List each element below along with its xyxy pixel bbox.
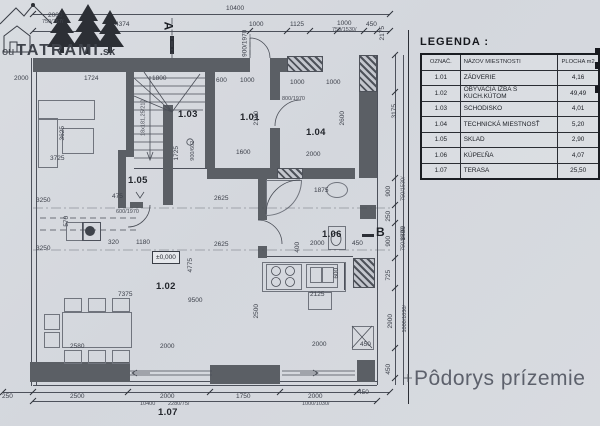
legend-cell: 4,16 bbox=[558, 70, 599, 86]
dim-label: 320 bbox=[108, 240, 119, 247]
dim-label: 1125 bbox=[290, 22, 304, 29]
legend-cell: 1.07 bbox=[421, 163, 460, 179]
legend-cell: TECHNICKÁ MIESTNOSŤ bbox=[460, 117, 558, 133]
dim-label: 1600 bbox=[236, 150, 250, 157]
legend-cell: KÚPEĽŇA bbox=[460, 148, 558, 164]
legend-cell: 1.04 bbox=[421, 117, 460, 133]
dim-label: 2175 bbox=[380, 26, 387, 40]
dim-label: 1000/1030/ bbox=[302, 402, 330, 408]
dim-label: 2000 bbox=[310, 241, 324, 248]
dim-label: 2125 bbox=[310, 292, 324, 299]
dim-label: 570 bbox=[64, 216, 71, 227]
dim-label: 2625 bbox=[214, 242, 228, 249]
dim-label: 2500 bbox=[70, 394, 84, 401]
sheet-edge-mark bbox=[595, 86, 600, 93]
legend-panel: LEGENDA : OZNAČ. NÁZOV MIESTNOSTI PLOCHA… bbox=[420, 36, 600, 180]
legend-row: 1.04 TECHNICKÁ MIESTNOSŤ 5,20 bbox=[421, 117, 599, 133]
dim-label: 3175 bbox=[392, 104, 399, 118]
legend-row: 1.06 KÚPEĽŇA 4,07 bbox=[421, 148, 599, 164]
level-marker: ±0,000 bbox=[152, 251, 180, 264]
logo-tld: .sk bbox=[100, 46, 115, 58]
dim-label: 2160 bbox=[254, 111, 261, 125]
dim-label: 450 bbox=[360, 342, 371, 349]
room-label-102: 1.02 bbox=[156, 282, 176, 292]
legend-title: LEGENDA : bbox=[420, 36, 600, 48]
dim-label: 600 bbox=[334, 268, 341, 279]
dim-label: 1725 bbox=[174, 146, 181, 160]
dim-label: 900/1970 bbox=[242, 30, 249, 57]
legend-cell: ZÁDVERIE bbox=[460, 70, 558, 86]
dim-label: 725 bbox=[386, 270, 393, 281]
dim-label: 450 bbox=[352, 241, 363, 248]
dim-label: 2000 bbox=[312, 342, 326, 349]
legend-header-plocha: PLOCHA m2 bbox=[558, 54, 599, 70]
legend-row: 1.07 TERASA 25,50 bbox=[421, 163, 599, 179]
dim-label: 1750 bbox=[236, 394, 250, 401]
room-label-106: 1.06 bbox=[322, 230, 342, 240]
dim-label: 3250 bbox=[36, 198, 50, 205]
legend-cell: 1.02 bbox=[421, 86, 460, 102]
dim-label: 1875 bbox=[314, 188, 328, 195]
dim-label: 2000 bbox=[308, 394, 322, 401]
dim-label: 800/1970 bbox=[282, 97, 305, 103]
sheet-edge-mark bbox=[595, 48, 600, 55]
logo-wordmark: ou TATRAMI .sk bbox=[2, 42, 115, 60]
floor-plan-sheet: ou TATRAMI .sk 1.01 1.02 1.03 1.04 1.05 … bbox=[0, 0, 600, 426]
dim-label: 250 bbox=[2, 394, 13, 401]
dim-label: 3250 bbox=[36, 246, 50, 253]
dim-label: 750/1530/ bbox=[401, 177, 407, 201]
section-marker-b: B bbox=[376, 226, 385, 238]
dim-label: 3725 bbox=[50, 156, 64, 163]
legend-cell: 4,01 bbox=[558, 101, 599, 117]
dim-label: 450 bbox=[366, 22, 377, 29]
legend-header-oznac: OZNAČ. bbox=[421, 54, 460, 70]
dim-label: 1000 bbox=[240, 78, 254, 85]
legend-cell: 1.05 bbox=[421, 132, 460, 148]
dim-label: 2000 bbox=[160, 344, 174, 351]
dim-label: 1000 bbox=[326, 80, 340, 87]
dim-label: 600/1970 bbox=[116, 210, 139, 216]
dim-label: 1000 bbox=[290, 80, 304, 87]
dim-label: 250 bbox=[386, 211, 393, 222]
legend-cell: 25,50 bbox=[558, 163, 599, 179]
legend-cell: 1.01 bbox=[421, 70, 460, 86]
dim-label: 600 bbox=[216, 78, 227, 85]
dim-label: 9500 bbox=[188, 298, 202, 305]
logo-brand: TATRAMI bbox=[16, 42, 100, 60]
dim-label: 900/602 bbox=[191, 141, 197, 161]
dim-label: 1000/1030/ bbox=[403, 305, 409, 333]
dim-label: 2500 bbox=[254, 304, 261, 318]
legend-row: 1.05 SKLAD 2,90 bbox=[421, 132, 599, 148]
room-label-107: 1.07 bbox=[158, 408, 178, 418]
dim-label: 2280/75/ bbox=[168, 402, 189, 408]
legend-cell: 1.03 bbox=[421, 101, 460, 117]
dim-label: 2900 bbox=[388, 314, 395, 328]
dim-label: 2000 bbox=[160, 394, 174, 401]
dim-label: 8400 bbox=[401, 226, 408, 240]
dim-label: 4775 bbox=[188, 258, 195, 272]
sheet-edge-mark bbox=[595, 62, 600, 69]
dim-label: 475 bbox=[112, 194, 123, 201]
room-label-103: 1.03 bbox=[178, 110, 198, 120]
legend-cell: OBÝVACIA IZBA S KUCH.KÚTOM bbox=[460, 86, 558, 102]
dim-label: 750/767/ bbox=[42, 20, 63, 26]
legend-cell: 4,07 bbox=[558, 148, 599, 164]
dim-label: 7375 bbox=[118, 292, 132, 299]
dim-label: 400 bbox=[295, 242, 302, 253]
dim-label: 2000 bbox=[306, 152, 320, 159]
dim-label: 900 bbox=[386, 236, 393, 247]
dim-label: 450 bbox=[358, 390, 369, 397]
dim-label: 1724 bbox=[84, 76, 98, 83]
fireplace-flue bbox=[85, 226, 95, 236]
tatrami-logo: ou TATRAMI .sk bbox=[0, 0, 130, 68]
legend-cell: SCHODISKO bbox=[460, 101, 558, 117]
legend-header-nazov: NÁZOV MIESTNOSTI bbox=[460, 54, 558, 70]
dim-label: 3625 bbox=[60, 126, 67, 140]
dim-label: 18x181,25/210 bbox=[141, 100, 147, 136]
legend-cell: SKLAD bbox=[460, 132, 558, 148]
dim-label: 900 bbox=[386, 186, 393, 197]
dim-label: 450 bbox=[386, 364, 393, 375]
legend-cell: TERASA bbox=[460, 163, 558, 179]
dim-label: 2000 bbox=[14, 76, 28, 83]
section-marker-a: A bbox=[162, 22, 174, 31]
dim-label: 2600 bbox=[340, 111, 347, 125]
room-label-105: 1.05 bbox=[128, 176, 148, 186]
dim-label: 750/1530/ bbox=[332, 28, 356, 34]
dim-label: 2625 bbox=[214, 196, 228, 203]
dim-label: 1180 bbox=[136, 240, 150, 247]
legend-row: 1.02 OBÝVACIA IZBA S KUCH.KÚTOM 49,49 bbox=[421, 86, 599, 102]
legend-table: OZNAČ. NÁZOV MIESTNOSTI PLOCHA m2 1.01 Z… bbox=[420, 53, 600, 180]
dim-label: 10400 bbox=[226, 6, 244, 13]
legend-row: 1.03 SCHODISKO 4,01 bbox=[421, 101, 599, 117]
dim-label: 10400 bbox=[140, 402, 155, 408]
legend-cell: 1.06 bbox=[421, 148, 460, 164]
drawing-title: Pôdorys prízemie bbox=[414, 367, 585, 391]
legend-cell: 49,49 bbox=[558, 86, 599, 102]
legend-cell: 5,20 bbox=[558, 117, 599, 133]
dim-label: 2580 bbox=[70, 344, 84, 351]
dim-label: 1000 bbox=[249, 22, 263, 29]
room-label-104: 1.04 bbox=[306, 128, 326, 138]
legend-row: 1.01 ZÁDVERIE 4,16 bbox=[421, 70, 599, 86]
dim-label: 1800 bbox=[152, 76, 166, 83]
dim-label: 4374 bbox=[115, 22, 129, 29]
legend-cell: 2,90 bbox=[558, 132, 599, 148]
logo-prefix: ou bbox=[2, 46, 14, 58]
